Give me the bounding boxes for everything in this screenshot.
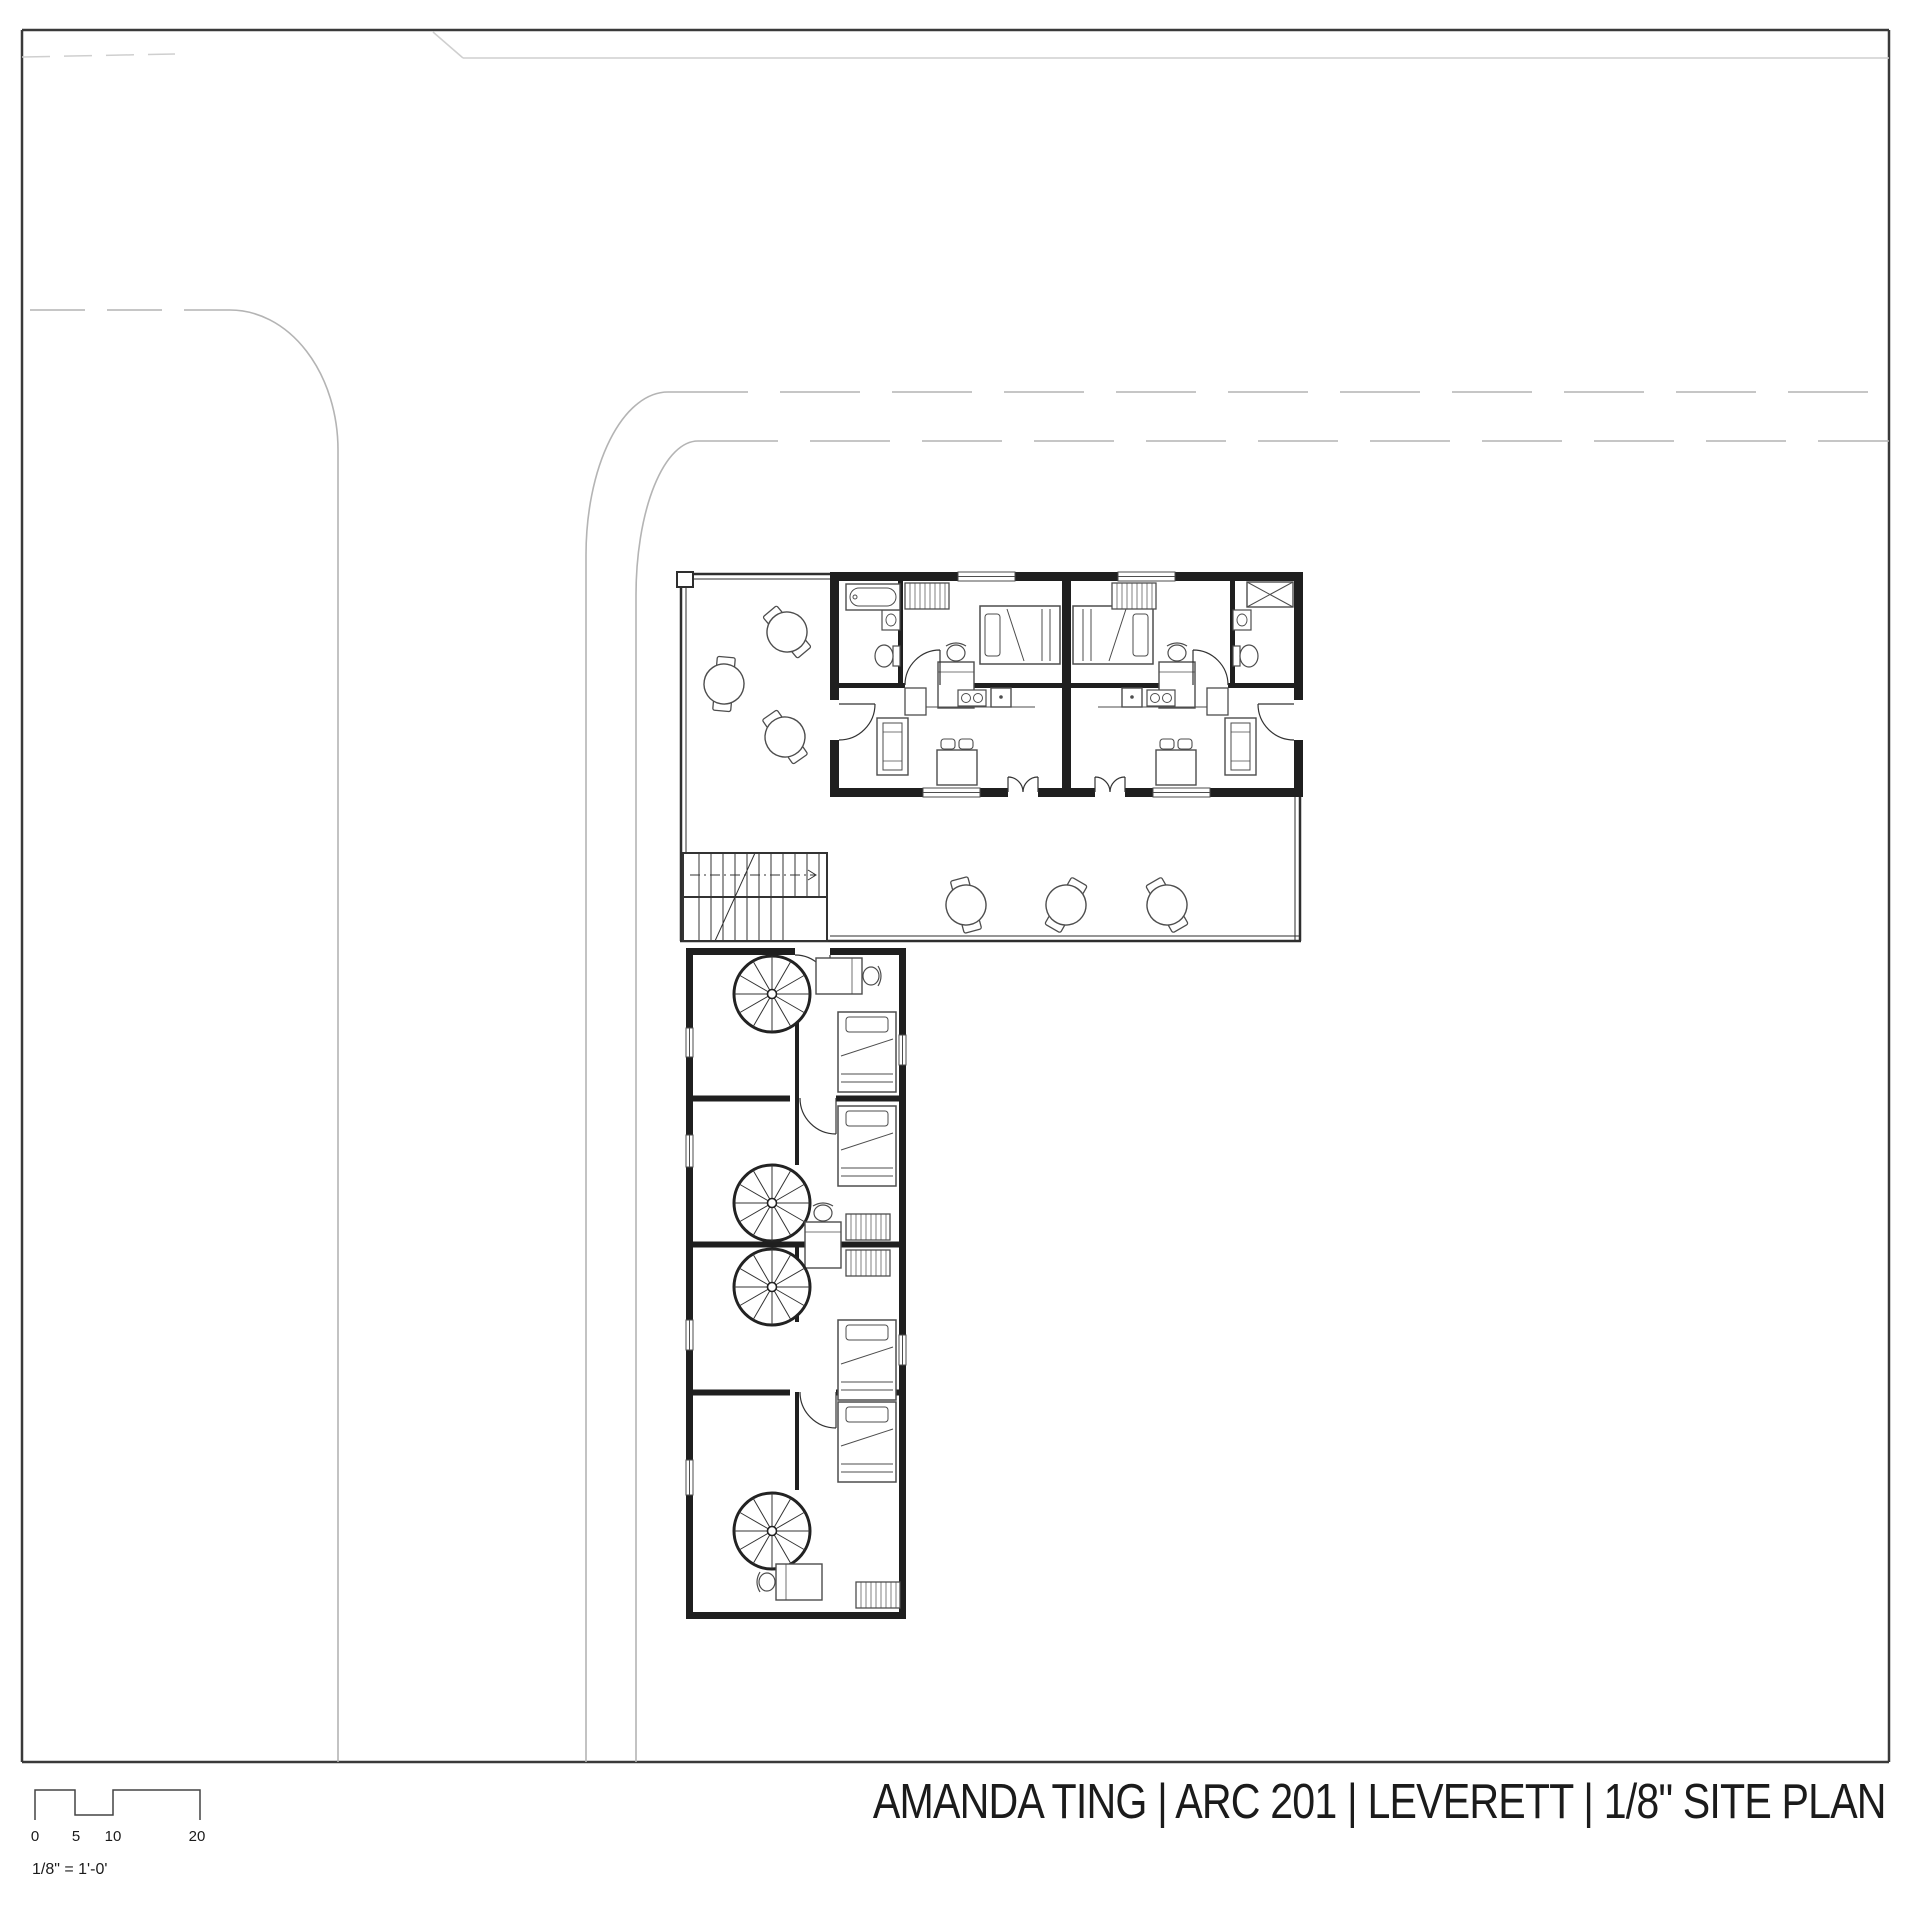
bed-symbol xyxy=(838,1012,896,1092)
scale-tick-0: 0 xyxy=(31,1828,39,1845)
building xyxy=(830,572,1303,797)
deck-corner-column xyxy=(677,572,693,587)
scale-tick-5: 5 xyxy=(72,1828,80,1845)
drawing-sheet: 0 5 10 20 1/8" = 1'-0' AMANDA TING | ARC… xyxy=(0,0,1920,1920)
site-boundary-line xyxy=(22,32,1889,58)
deck-table xyxy=(1134,873,1200,937)
deck-table xyxy=(1038,875,1095,936)
main-stairs xyxy=(683,853,827,941)
wing-room-1 xyxy=(734,956,896,1092)
wing-room-4 xyxy=(734,1402,900,1608)
storage-x-symbol xyxy=(1247,582,1293,607)
spiral-stair-symbol xyxy=(734,1493,810,1569)
scale-bar-shape xyxy=(35,1790,200,1820)
desk-symbol xyxy=(805,1203,841,1268)
road-curb-outer xyxy=(636,441,1889,1762)
closet-symbol xyxy=(905,583,949,609)
patio-table xyxy=(689,648,759,719)
deck-tables xyxy=(930,870,1200,940)
scale-tick-10: 10 xyxy=(105,1828,122,1845)
spiral-stair-symbol xyxy=(734,1249,810,1325)
bathtub-symbol xyxy=(846,584,900,610)
wing xyxy=(686,948,906,1619)
road-curb-west xyxy=(30,310,338,1762)
bed-symbol xyxy=(838,1402,896,1482)
scale-bar: 0 5 10 20 1/8" = 1'-0' xyxy=(31,1790,206,1878)
scale-note: 1/8" = 1'-0' xyxy=(32,1861,107,1878)
scale-tick-20: 20 xyxy=(189,1828,206,1845)
closet-symbol xyxy=(1112,583,1156,609)
road-lines xyxy=(30,310,1889,1762)
patio-table xyxy=(757,604,818,661)
desk-symbol xyxy=(816,958,881,994)
site-plan-drawing: 0 5 10 20 1/8" = 1'-0' xyxy=(0,0,1920,1920)
drawing-title: AMANDA TING | ARC 201 | LEVERETT | 1/8" … xyxy=(873,1776,1886,1828)
bed-symbol xyxy=(838,1320,896,1400)
wing-room-3 xyxy=(734,1249,896,1400)
patio-tables xyxy=(689,604,817,768)
bookshelf-symbol xyxy=(856,1582,900,1608)
spiral-stair-symbol xyxy=(734,1165,810,1241)
spiral-stair-symbol xyxy=(734,956,810,1032)
bookshelf-symbol xyxy=(846,1214,890,1240)
patio-table xyxy=(753,707,817,768)
deck-table xyxy=(930,870,1001,940)
bookshelf-symbol xyxy=(846,1250,890,1276)
bed-symbol xyxy=(838,1106,896,1186)
